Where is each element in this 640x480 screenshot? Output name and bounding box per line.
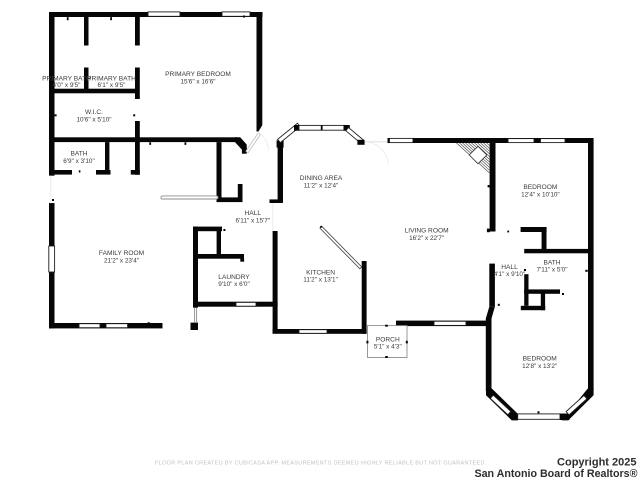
svg-text:BATH: BATH (543, 260, 560, 267)
svg-text:W.I.C.: W.I.C. (85, 109, 103, 116)
svg-text:BATH: BATH (70, 151, 87, 158)
svg-text:BEDROOM: BEDROOM (523, 184, 557, 191)
svg-text:LAUNDRY: LAUNDRY (218, 274, 250, 281)
svg-text:Copyright 2025: Copyright 2025 (557, 456, 636, 468)
svg-text:6'1" x 9'5": 6'1" x 9'5" (98, 82, 126, 89)
svg-text:FAMILY ROOM: FAMILY ROOM (99, 250, 144, 257)
svg-text:LIVING ROOM: LIVING ROOM (405, 228, 449, 235)
svg-text:15'6" x 16'6": 15'6" x 16'6" (180, 78, 215, 85)
svg-text:6'9" x 3'10": 6'9" x 3'10" (63, 158, 95, 165)
svg-text:PORCH: PORCH (376, 336, 400, 343)
svg-text:4'1" x 9'10": 4'1" x 9'10" (494, 271, 526, 278)
svg-text:7'11" x 5'0": 7'11" x 5'0" (536, 267, 567, 274)
svg-text:HALL: HALL (501, 264, 518, 271)
svg-text:12'4" x 10'10": 12'4" x 10'10" (521, 191, 560, 198)
svg-text:BEDROOM: BEDROOM (523, 356, 557, 363)
svg-text:11'2" x 13'1": 11'2" x 13'1" (303, 277, 338, 284)
svg-text:KITCHEN: KITCHEN (306, 270, 335, 277)
svg-text:11'2" x 12'4": 11'2" x 12'4" (304, 183, 339, 190)
svg-text:12'8" x 13'2": 12'8" x 13'2" (522, 363, 557, 370)
svg-text:San Antonio Board of Realtors®: San Antonio Board of Realtors® (474, 468, 637, 480)
svg-text:DINING AREA: DINING AREA (300, 175, 343, 182)
svg-text:FLOOR PLAN CREATED BY CUBICASA: FLOOR PLAN CREATED BY CUBICASA APP. MEAS… (155, 460, 487, 466)
svg-text:6'11" x 15'7": 6'11" x 15'7" (236, 218, 271, 225)
svg-text:5'1" x 4'3": 5'1" x 4'3" (374, 344, 402, 351)
svg-text:4'0" x 9'5": 4'0" x 9'5" (53, 82, 81, 89)
svg-text:PRIMARY BEDROOM: PRIMARY BEDROOM (165, 71, 231, 78)
svg-text:9'10" x 6'0": 9'10" x 6'0" (218, 281, 250, 288)
svg-text:10'6" x 5'10": 10'6" x 5'10" (76, 116, 111, 123)
svg-text:HALL: HALL (245, 210, 262, 217)
svg-text:16'2" x 22'7": 16'2" x 22'7" (409, 235, 444, 242)
svg-text:21'2" x 23'4": 21'2" x 23'4" (104, 257, 139, 264)
